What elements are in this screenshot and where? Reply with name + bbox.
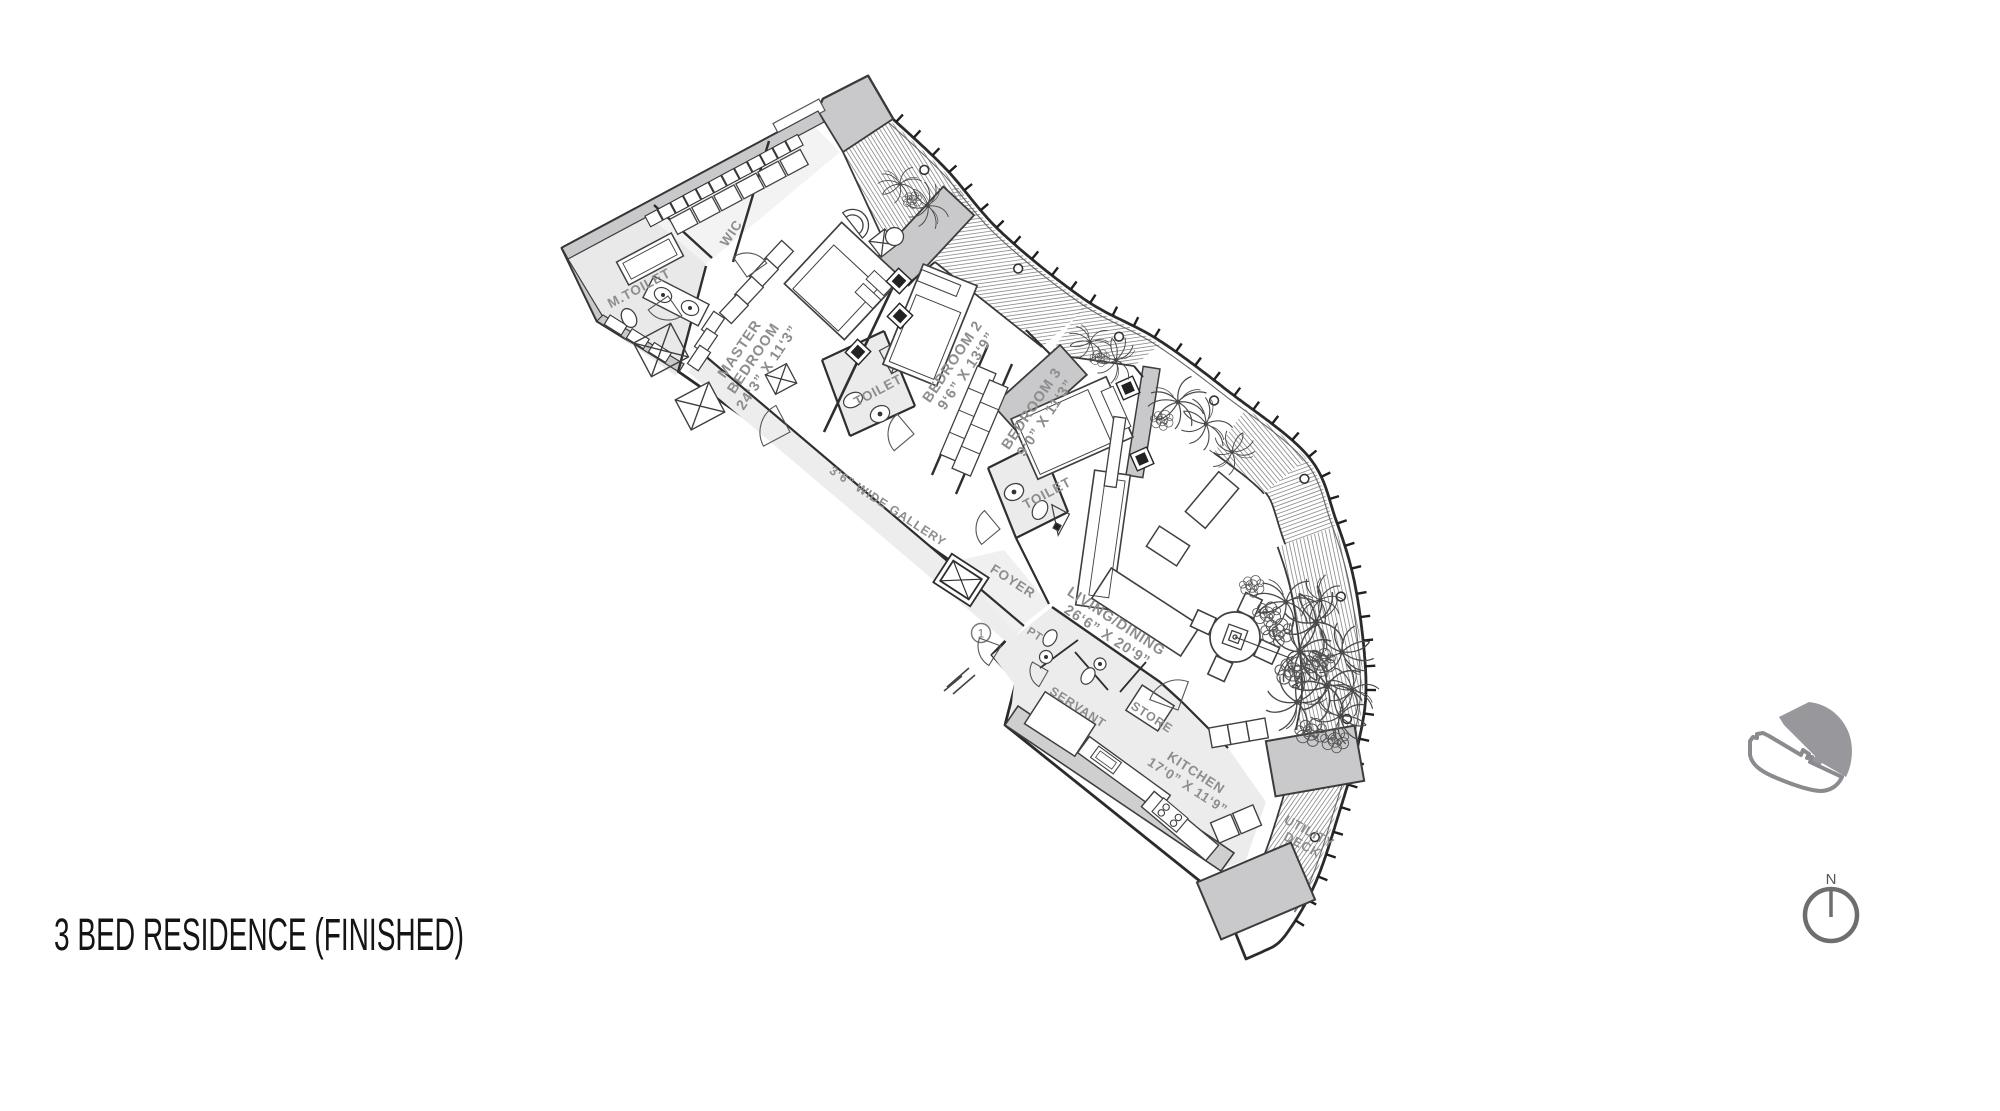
svg-text:N: N (1826, 871, 1837, 888)
svg-text:3 BED RESIDENCE (FINISHED): 3 BED RESIDENCE (FINISHED) (54, 909, 464, 960)
